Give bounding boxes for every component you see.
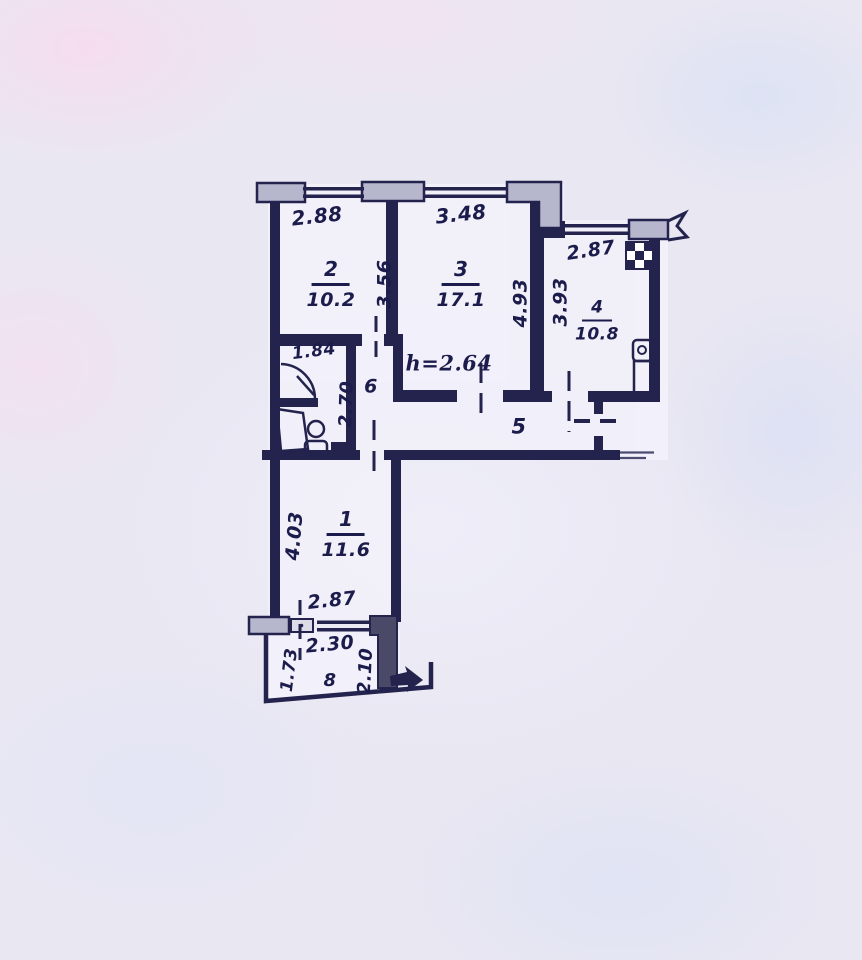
room3-number: 3 bbox=[442, 257, 480, 286]
room3-label: 3 17.1 bbox=[437, 257, 486, 311]
room1-width-dim: 2.87 bbox=[307, 589, 358, 613]
balcony-width-dim: 2.30 bbox=[305, 633, 355, 656]
sink bbox=[331, 442, 347, 455]
room1-depth-dim: 4.03 bbox=[283, 511, 306, 561]
ceiling-height-note: h=2.64 bbox=[405, 353, 492, 374]
room2-label: 2 10.2 bbox=[307, 257, 356, 311]
room1-label: 1 11.6 bbox=[322, 507, 371, 561]
room3-area: 17.1 bbox=[437, 286, 486, 311]
ventilation-shaft-icon bbox=[626, 242, 653, 269]
room5-number: 5 bbox=[511, 417, 526, 438]
room2-depth-dim: 3.56 bbox=[376, 260, 395, 309]
room1-number: 1 bbox=[327, 507, 365, 536]
room3-width-dim: 3.48 bbox=[434, 201, 487, 226]
balcony-right-depth-dim: 2.10 bbox=[356, 647, 376, 694]
room4-number: 4 bbox=[582, 298, 612, 322]
scanned-floor-plan-page: 2.88 3.48 2.87 3.56 2 10.2 3 17.1 4.93 3… bbox=[0, 0, 862, 960]
room3-depth-dim: 4.93 bbox=[512, 279, 531, 328]
room4-label: 4 10.8 bbox=[575, 298, 619, 345]
room2-number: 2 bbox=[312, 257, 350, 286]
room4-depth-dim: 3.93 bbox=[552, 278, 571, 327]
room8-number: 8 bbox=[323, 672, 336, 690]
wc-depth-dim: 2.70 bbox=[337, 380, 357, 427]
room6-number: 6 bbox=[364, 378, 378, 397]
floor-plan-drawing bbox=[0, 0, 862, 960]
room2-area: 10.2 bbox=[307, 286, 356, 311]
wall-break-icon bbox=[668, 213, 687, 240]
room4-area: 10.8 bbox=[575, 322, 619, 345]
room1-area: 11.6 bbox=[322, 536, 371, 561]
room2-width-dim: 2.88 bbox=[290, 203, 343, 228]
